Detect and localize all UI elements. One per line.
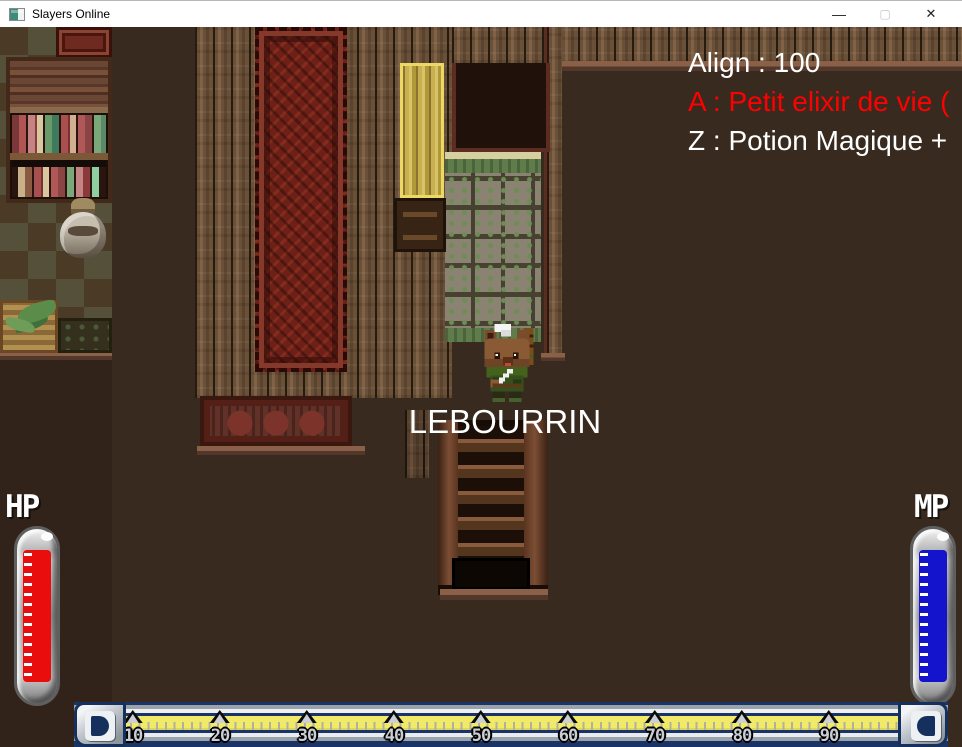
xp-cap-emblem [85,711,115,741]
red-carpet [255,27,347,372]
xp-mark-20: 20 [211,727,229,746]
bookshelf-top-wood [10,61,108,109]
xp-ruler-bar: 10 20 30 40 50 60 70 80 90 [74,702,948,747]
xp-mark-40: 40 [385,727,403,746]
bookshelf [6,57,112,203]
item-slot-a: A : Petit elixir de vie ( [688,86,949,118]
small-rug [200,396,352,446]
minimize-button[interactable]: — [816,1,862,28]
xp-bar-left-cap [74,702,126,747]
books-row-upper [12,115,106,153]
xp-cap-emblem-d [917,716,935,736]
game-viewport[interactable]: LEBOURRIN Align : 100 A : Petit elixir d… [0,27,962,747]
yellow-door-panel [400,63,444,198]
xp-scale: 10 20 30 40 50 60 70 80 90 [74,702,948,747]
align-status: Align : 100 [688,47,820,79]
xp-mark-90: 90 [820,727,838,746]
pottery-jar [58,198,108,260]
player-sprite[interactable] [478,324,536,402]
bookshelf-shelf-mid [10,153,108,160]
mp-fill [919,550,947,682]
stone-moss-top [445,159,541,173]
stair-bottom-box [452,558,530,590]
stone-wall-cap [445,152,541,159]
app-icon [9,8,25,21]
drawer-chest [394,198,446,252]
books-row-lower [12,160,106,197]
xp-bar-right-cap [898,702,948,747]
player-name-label: LEBOURRIN [395,403,615,439]
staircase [438,420,548,595]
maximize-button[interactable]: ▢ [862,1,908,28]
xp-mark-50: 50 [472,727,490,746]
hp-fill [23,550,51,682]
stone-wall [445,152,541,342]
close-button[interactable]: ✕ [908,1,954,28]
xp-cap-emblem-d [91,716,109,736]
app-window: { "window": { "title": "Slayers Online",… [0,0,962,747]
stair-baseboard [440,589,548,600]
title-bar[interactable]: Slayers Online — ▢ ✕ [0,0,962,27]
xp-mark-30: 30 [298,727,316,746]
dark-doorway [452,63,550,152]
plant-basket [0,300,58,353]
bookshelf-shelf-edge [10,107,108,113]
item-slot-z: Z : Potion Magique + [688,125,947,157]
crate [58,318,112,353]
xp-mark-70: 70 [646,727,664,746]
xp-cap-emblem [911,711,941,741]
corner-rug [56,27,112,58]
hp-gauge [14,526,60,706]
plank-column-base [541,353,565,361]
xp-mark-80: 80 [733,727,751,746]
rug-baseboard [197,446,365,455]
window-title: Slayers Online [32,7,110,21]
xp-mark-10: 10 [124,727,142,746]
mp-gauge [910,526,956,706]
jar-band [68,226,98,236]
stair-steps [458,426,524,576]
mp-label: MP [914,489,947,525]
hp-label: HP [5,489,38,525]
xp-mark-60: 60 [559,727,577,746]
